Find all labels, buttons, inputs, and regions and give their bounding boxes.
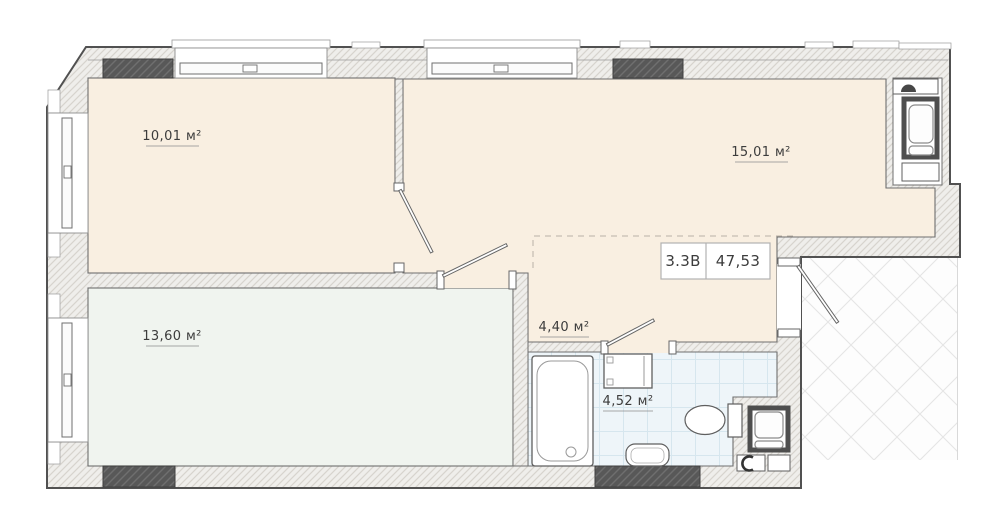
vent-block — [103, 466, 175, 487]
washing-machine — [604, 354, 652, 388]
window — [48, 113, 88, 233]
room-bedroom-top-left — [88, 78, 395, 273]
room-area-label: 10,01 м² — [142, 129, 202, 144]
unit-total-area: 47,53 — [716, 252, 760, 270]
floor-plan-page: 10,01 м² 15,01 м² 13,60 м² 4,40 м² 4,52 … — [0, 0, 1000, 522]
vent-block — [613, 59, 683, 78]
ac-unit-top — [904, 99, 937, 157]
shelf-box — [902, 163, 939, 181]
window — [48, 318, 88, 442]
bathtub — [532, 356, 593, 466]
room-area-label: 4,52 м² — [603, 394, 654, 409]
unit-type-label: 3.3В — [665, 252, 700, 270]
terrace — [802, 258, 958, 460]
room-area-label: 15,01 м² — [731, 145, 791, 160]
room-area-label: 4,40 м² — [539, 320, 590, 335]
window — [175, 48, 327, 78]
vent-block — [103, 59, 173, 78]
floor-plan: 10,01 м² 15,01 м² 13,60 м² 4,40 м² 4,52 … — [0, 0, 1000, 522]
partition-wall — [395, 79, 403, 188]
vent-block — [595, 466, 700, 487]
room-area-label: 13,60 м² — [142, 329, 202, 344]
window — [427, 48, 577, 78]
bottom-room-right-wall — [513, 273, 528, 466]
ac-unit-bottom — [750, 408, 788, 450]
unit-info-box: 3.3В 47,53 — [661, 243, 770, 279]
room-bedroom-bottom — [88, 288, 513, 466]
toilet — [685, 404, 742, 437]
hatch-box — [768, 455, 790, 471]
sink — [626, 444, 669, 466]
